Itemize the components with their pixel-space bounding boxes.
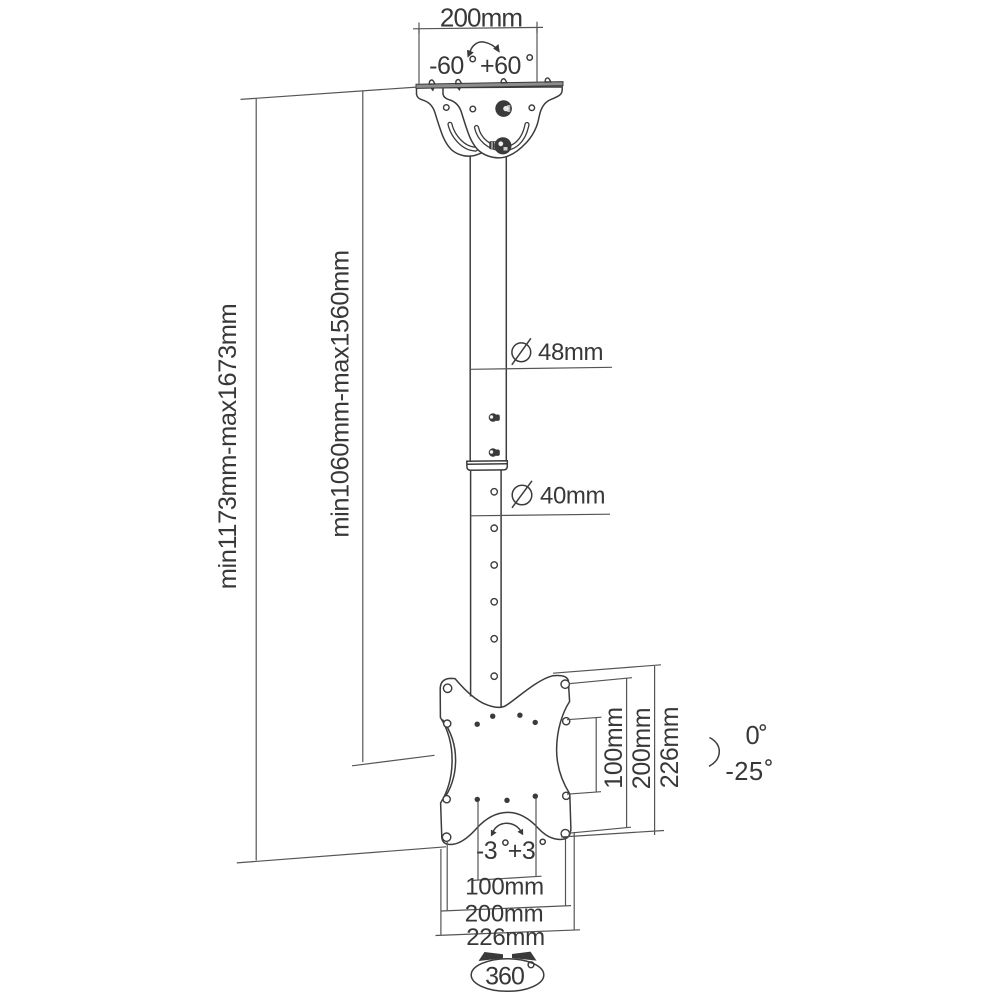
svg-text:360: 360 [485, 963, 524, 991]
svg-text:48mm: 48mm [538, 339, 603, 366]
svg-text:-25: -25 [725, 758, 763, 786]
svg-text:226mm: 226mm [656, 707, 684, 788]
svg-text:+3: +3 [508, 837, 536, 865]
svg-text:+60: +60 [480, 52, 521, 80]
svg-text:-3: -3 [476, 837, 497, 865]
svg-text:200mm: 200mm [628, 708, 656, 789]
svg-text:226mm: 226mm [466, 924, 545, 951]
svg-text:min1060mm-max1560mm: min1060mm-max1560mm [327, 250, 355, 537]
svg-text:200mm: 200mm [440, 3, 522, 33]
svg-text:-60: -60 [429, 52, 464, 80]
svg-text:100mm: 100mm [600, 707, 628, 788]
svg-text:40mm: 40mm [540, 483, 605, 510]
svg-text:min1173mm-max1673mm: min1173mm-max1673mm [214, 304, 242, 589]
svg-text:0: 0 [746, 722, 760, 750]
svg-text:100mm: 100mm [465, 874, 544, 901]
